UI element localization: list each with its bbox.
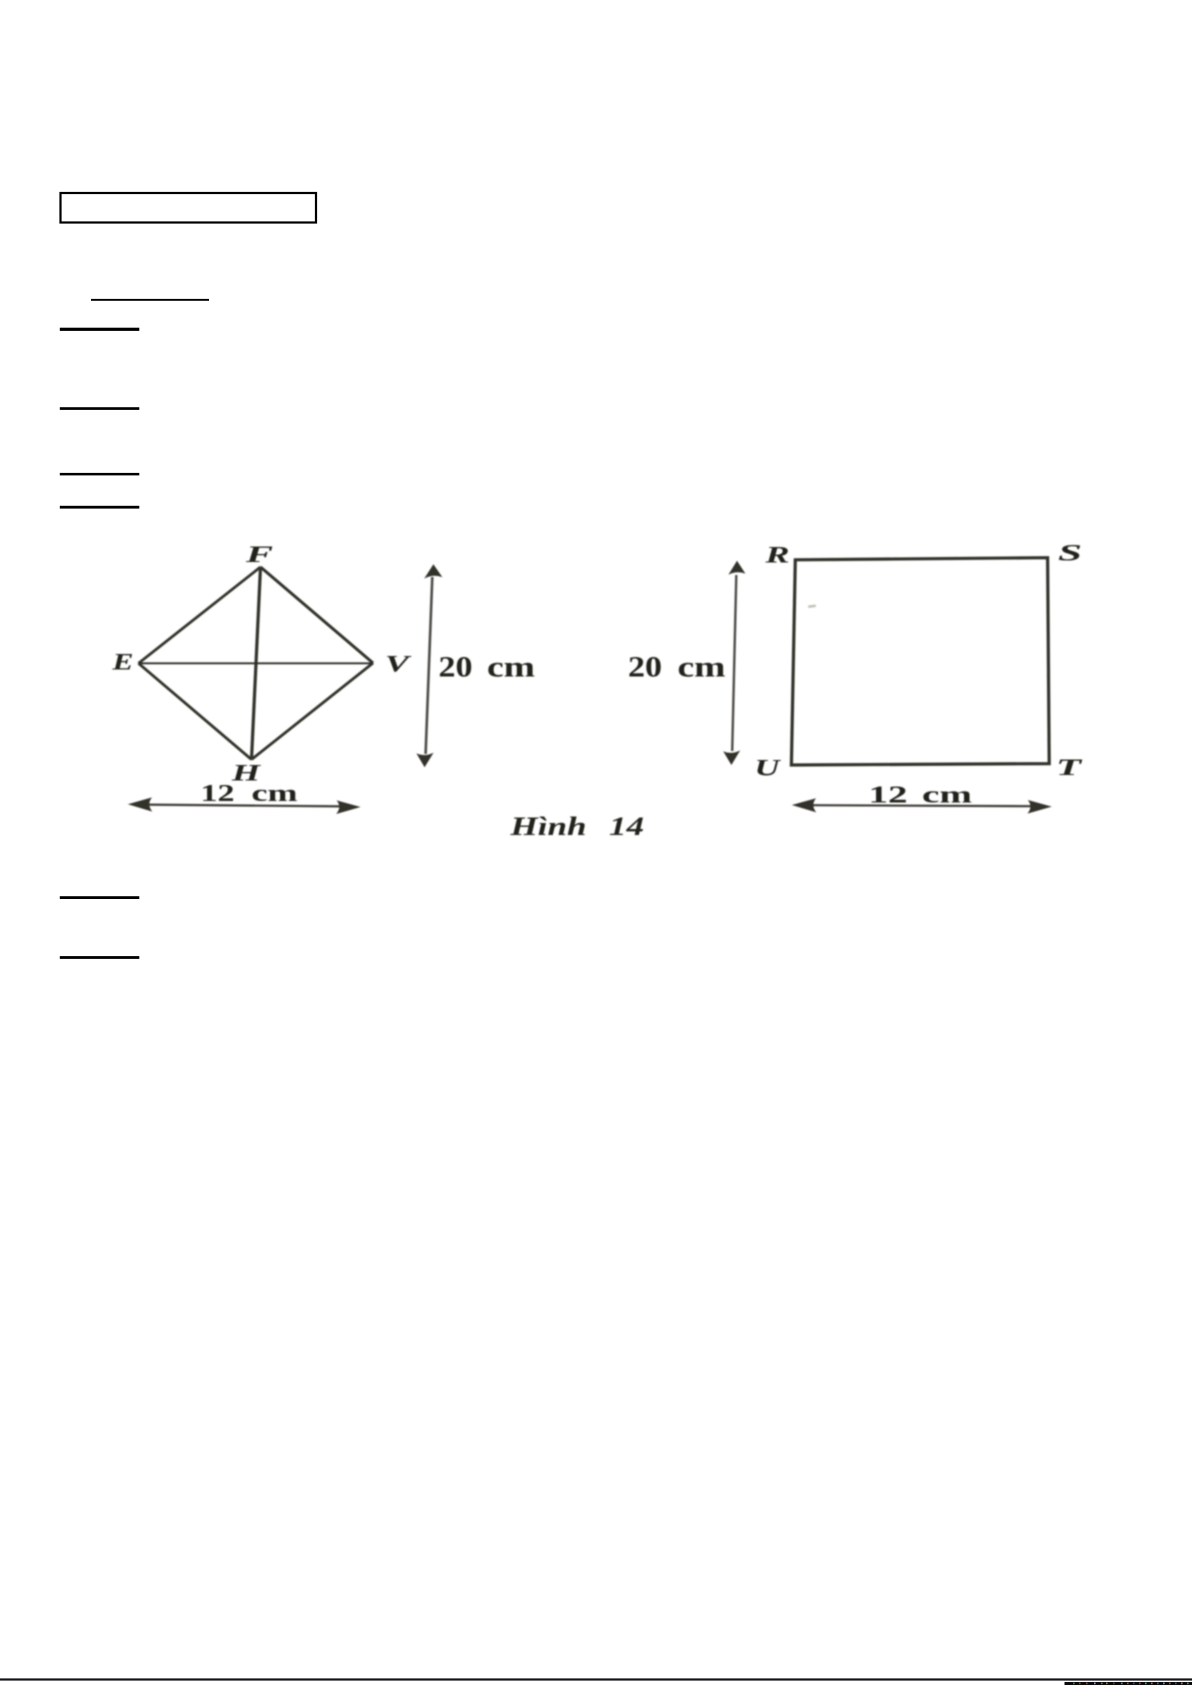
svg-text:20cm: 20cm: [439, 651, 536, 684]
svg-text:T: T: [1056, 755, 1083, 780]
svg-text:E: E: [111, 650, 133, 675]
svg-text:20cm: 20cm: [628, 651, 726, 684]
svg-text:F: F: [244, 542, 273, 567]
svg-text:Hình14: Hình14: [509, 812, 644, 841]
svg-text:R: R: [764, 543, 790, 568]
svg-text:U: U: [755, 756, 782, 781]
svg-text:S: S: [1058, 541, 1082, 566]
svg-text:V: V: [385, 652, 412, 677]
